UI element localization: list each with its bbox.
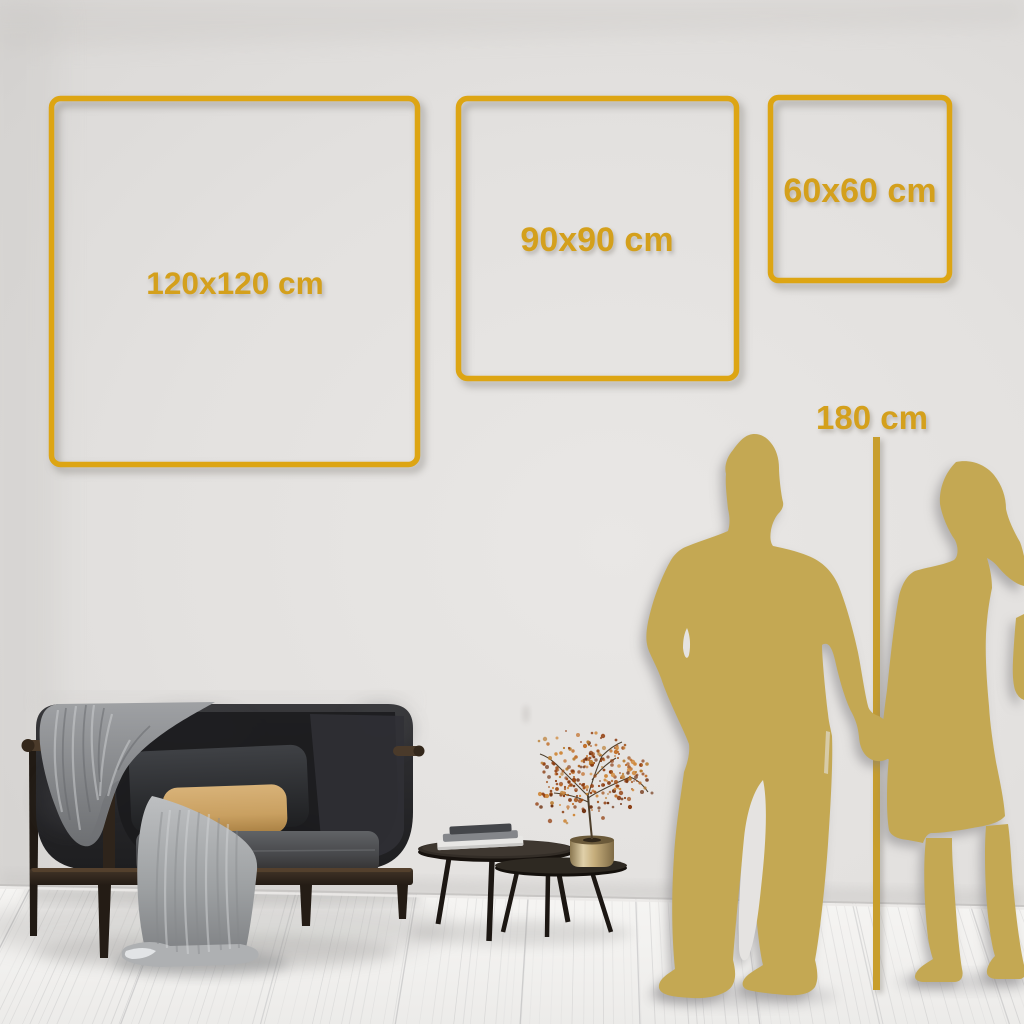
svg-text:180 cm: 180 cm bbox=[816, 399, 928, 436]
svg-text:120x120 cm: 120x120 cm bbox=[146, 265, 323, 301]
svg-text:60x60 cm: 60x60 cm bbox=[783, 172, 936, 210]
svg-text:90x90 cm: 90x90 cm bbox=[520, 221, 673, 259]
